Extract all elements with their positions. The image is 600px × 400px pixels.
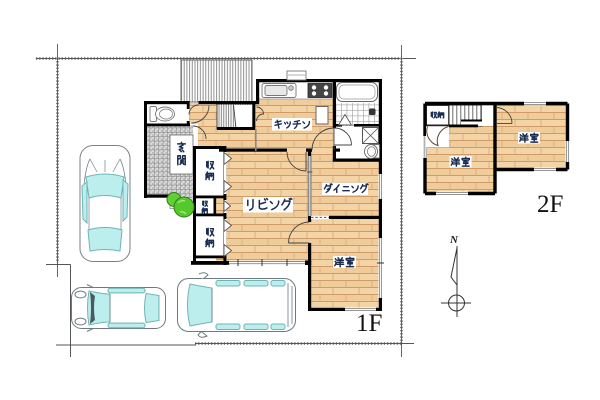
svg-text:1F: 1F <box>356 310 382 337</box>
svg-text:2F: 2F <box>537 191 563 218</box>
svg-text:N: N <box>449 234 459 246</box>
